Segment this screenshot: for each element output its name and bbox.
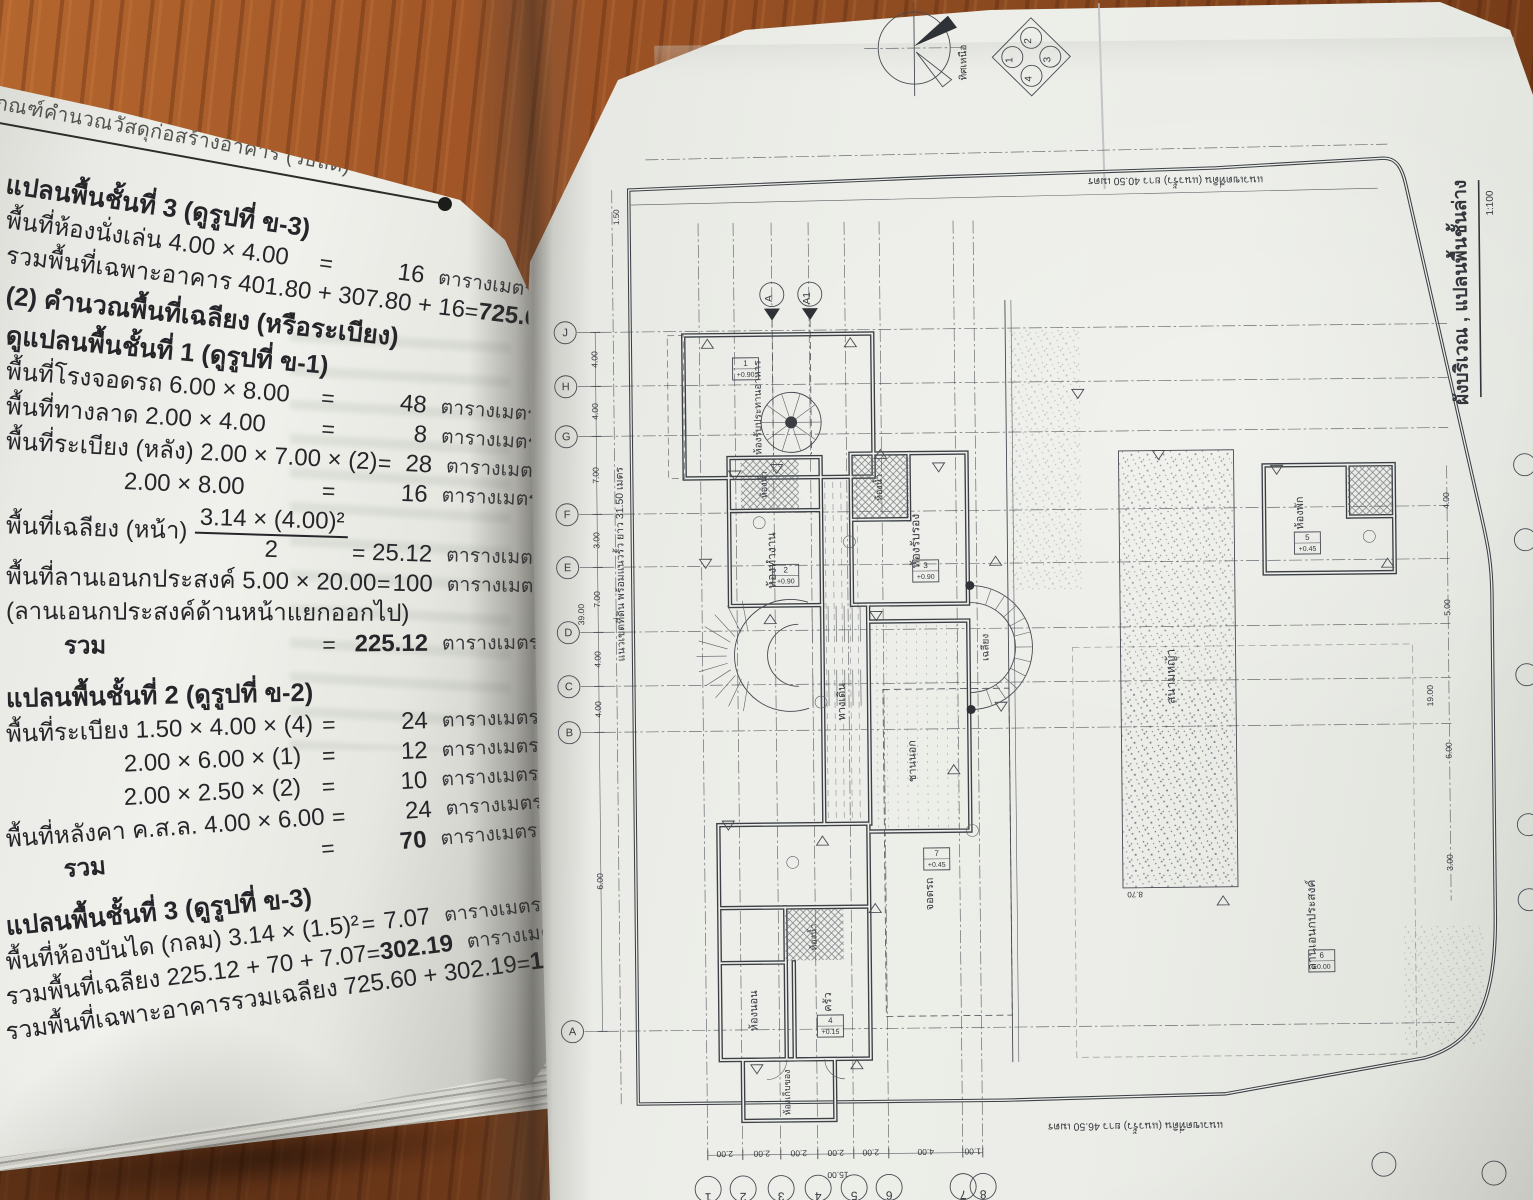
equals-sign: = <box>313 772 344 800</box>
dim-bottom: 2.00 <box>827 1148 844 1158</box>
floor-plan-drawing: 1234 <box>520 0 1533 1200</box>
equals-sign: = <box>314 631 344 657</box>
tag-circle <box>1363 530 1375 542</box>
level-box-value: +0.45 <box>928 862 946 869</box>
dim-left: 4.00 <box>590 403 600 420</box>
marker-triangle <box>933 463 945 472</box>
calc-row-11: (ลานเอนกประสงค์ด้านหน้าแยกออกไป) <box>6 599 544 628</box>
grid-bubble-right <box>1518 889 1533 911</box>
calc-value: 100 <box>391 571 433 598</box>
grid-number: 2 <box>740 1190 747 1200</box>
photocopy-smudge <box>1127 688 1229 879</box>
dim-bottom: 2.00 <box>790 1148 807 1158</box>
spiral-staircase <box>761 392 822 453</box>
equals-sign: = <box>312 415 344 443</box>
marker-triangle <box>870 611 882 620</box>
boundary-text-top: แนวเขตที่ดิน (แนวรั้ว) ยาว 40.50 เมตร <box>1087 173 1263 189</box>
calc-label: พื้นที่ลานเอนกประสงค์ 5.00 × 20.00 <box>6 564 377 596</box>
level-box-value: ±0.00 <box>1313 964 1331 971</box>
marker-triangle <box>990 556 1002 565</box>
marker-triangle <box>1217 896 1229 905</box>
boundary-text-bottom: แนวเขตที่ดิน (แนวรั้ว) ยาว 46.50 เมตร <box>1047 1119 1223 1135</box>
equals-sign: = <box>324 803 354 831</box>
dim-bottom: 4.00 <box>917 1147 934 1157</box>
calc-label: แปลนพื้นชั้นที่ 2 (ดูรูปที่ ข-2) <box>6 680 314 712</box>
title-underline <box>1479 180 1481 397</box>
dim-left: 4.00 <box>593 701 603 718</box>
calc-value: 7.07 <box>376 904 431 936</box>
room-label: ห้องเก็บของ <box>780 1069 792 1115</box>
dim-right-total: 19.00 <box>1425 685 1435 707</box>
grid-letter: C <box>565 681 573 693</box>
calc-label: (ลานเอนกประสงค์ด้านหน้าแยกออกไป) <box>6 599 410 627</box>
grid-letter: B <box>566 727 573 739</box>
calc-row-12: รวม = 225.12 ตารางเมตร <box>6 630 544 660</box>
grid-letter: E <box>564 562 571 574</box>
grid-number: 3 <box>778 1189 785 1200</box>
section-marker-label: A1 <box>802 292 813 305</box>
grid-number: 8 <box>979 1187 986 1200</box>
grid-letter: F <box>564 509 571 521</box>
equals-sign: = <box>376 570 391 596</box>
calc-label: พื้นที่ระเบียง 1.50 × 4.00 × (4) <box>6 712 315 748</box>
section-marker-label: A <box>764 295 775 302</box>
level-box-number: 4 <box>828 1016 833 1025</box>
tag-circle <box>787 856 799 868</box>
dim-misc: 1.50 <box>612 209 621 225</box>
room-label: สนามหญ้า <box>1164 649 1179 704</box>
room-label: ชานนอก <box>906 740 918 782</box>
book-photo: เกณฑ์คำนวณวัสดุก่อสร้างอาคาร (วิธีลัด) แ… <box>0 0 1533 1200</box>
equals-sign: = <box>377 450 393 477</box>
calculation-rows: แปลนพื้นชั้นที่ 3 (ดูรูปที่ ข-3) พื้นที่… <box>6 158 544 1055</box>
calc-label: 2.00 × 8.00 <box>5 464 314 503</box>
calc-value <box>415 352 465 357</box>
dim-bottom: 2.00 <box>716 1149 733 1159</box>
level-box-value: +0.45 <box>1299 546 1317 553</box>
room-label: ทางเดิน <box>836 683 848 721</box>
calc-value: 10 <box>343 768 428 799</box>
grid-number: 4 <box>815 1189 822 1200</box>
grid-letter: H <box>562 381 570 393</box>
equals-sign <box>314 705 344 706</box>
equals-sign <box>397 350 415 352</box>
calc-value: 16 <box>343 478 428 508</box>
dim-left: 7.00 <box>591 467 601 484</box>
dim-left: 3.00 <box>591 532 601 549</box>
keyplan-number: 3 <box>1042 56 1053 62</box>
level-box-number: 3 <box>923 561 928 570</box>
calc-label: รวม <box>6 632 314 660</box>
dim-right: 6.00 <box>1444 742 1454 759</box>
grid-bubble-right <box>1513 454 1533 476</box>
equals-sign: = <box>313 711 344 738</box>
left-page: เกณฑ์คำนวณวัสดุก่อสร้างอาคาร (วิธีลัด) แ… <box>0 0 548 1200</box>
dim-left: 6.00 <box>595 873 605 890</box>
dim-bottom: 1.00 <box>964 1146 981 1156</box>
equals-sign: = <box>312 384 344 412</box>
dim-left-total: 39.00 <box>576 604 586 626</box>
corridor-floor <box>825 481 959 828</box>
dim-right: 3.00 <box>1445 854 1455 871</box>
room-label: ห้องน้ำ <box>806 924 818 951</box>
dim-left: 4.00 <box>593 651 603 668</box>
equals-sign: = <box>347 539 370 566</box>
dim-misc: 8.70 <box>1127 890 1143 899</box>
grid-bubble-right <box>1517 814 1533 836</box>
level-box-number: 2 <box>783 565 788 574</box>
equals-sign: = <box>310 248 343 278</box>
room-label: ห้องพัก <box>1294 496 1306 529</box>
curved-terrace <box>965 580 1033 714</box>
equals-sign <box>314 908 344 911</box>
calc-value: 225.12 <box>344 631 428 658</box>
level-box-value: +0.90 <box>737 372 755 379</box>
calc-value: 48 <box>342 386 428 419</box>
keyplan-number: 2 <box>1023 38 1034 44</box>
equals-sign: = <box>313 477 344 504</box>
equals-sign <box>309 242 339 246</box>
marker-triangle <box>844 338 856 347</box>
room-label: ครัว <box>822 992 834 1012</box>
grid-letter: D <box>564 627 572 639</box>
dim-right: 5.00 <box>1442 599 1452 616</box>
calc-value <box>344 703 428 705</box>
equals-sign <box>327 379 355 382</box>
paper-crease <box>1099 3 1105 189</box>
level-box-number: 5 <box>1305 533 1310 542</box>
keyplan-number: 4 <box>1024 76 1035 82</box>
level-box-number: 1 <box>743 359 748 368</box>
dim-bottom: 2.00 <box>753 1149 770 1159</box>
calc-value: 70 <box>342 827 428 860</box>
calc-value: 24 <box>352 797 433 829</box>
marker-triangle <box>701 339 713 348</box>
calc-row-10: พื้นที่ลานเอนกประสงค์ 5.00 × 20.00 = 100… <box>6 564 544 599</box>
dim-bottom: 2.00 <box>862 1148 879 1158</box>
level-box-number: 6 <box>1319 951 1324 960</box>
room-label: ห้องน้ำ <box>757 471 769 498</box>
calc-value: 8 <box>342 417 428 449</box>
room-label: ห้องนอน <box>748 990 760 1031</box>
tag-circle <box>753 517 765 529</box>
calc-value: 24 <box>343 708 428 737</box>
dim-left: 4.00 <box>589 351 599 368</box>
grid-number: 5 <box>851 1189 858 1200</box>
calc-value: 12 <box>343 738 428 768</box>
keyplan-number: 1 <box>1004 57 1015 63</box>
room-label: เฉลียง <box>979 634 991 661</box>
calc-value: 28 <box>391 450 433 478</box>
grid-number: 6 <box>885 1188 892 1200</box>
calc-value: 25.12 <box>369 540 432 568</box>
dim-bottom-total: 15.00 <box>827 1170 849 1180</box>
compass-label: ทิศเหนือ <box>957 45 969 81</box>
level-box-value: +0.15 <box>822 1029 840 1036</box>
dim-right: 4.00 <box>1441 492 1451 509</box>
equals-sign: = <box>312 834 344 862</box>
marker-triangle <box>816 836 828 845</box>
grid-letter: J <box>562 327 568 339</box>
grid-bubble-right <box>1516 664 1533 686</box>
calc-label: พื้นที่เฉลียง (หน้า)3.14 × (4.00)²2 <box>5 499 349 565</box>
marker-triangle <box>751 1065 763 1074</box>
calc-row-9: พื้นที่เฉลียง (หน้า)3.14 × (4.00)²2 = 25… <box>5 499 544 571</box>
dim-left: 7.00 <box>592 591 602 608</box>
grid-letter: G <box>562 431 571 443</box>
grid-letter: A <box>569 1026 577 1038</box>
paper-fold-shade <box>654 37 1514 92</box>
drawing-scale: 1:100 <box>1485 190 1496 216</box>
equals-sign: = <box>313 742 344 769</box>
grid-number: 7 <box>959 1188 966 1200</box>
grid-number: 1 <box>705 1190 712 1200</box>
room-label: จอดรถ <box>924 878 936 911</box>
grid-bubble-right <box>1514 529 1533 551</box>
level-box-number: 7 <box>934 849 939 858</box>
marker-triangle <box>764 615 776 624</box>
room-label: ลานเอนกประสงค์ <box>1304 879 1319 970</box>
level-box-value: +0.90 <box>917 574 935 581</box>
level-box-value: +0.90 <box>777 578 795 585</box>
photocopy-smudge <box>1009 329 1082 590</box>
room-label: ห้องน้ำ <box>872 474 884 501</box>
